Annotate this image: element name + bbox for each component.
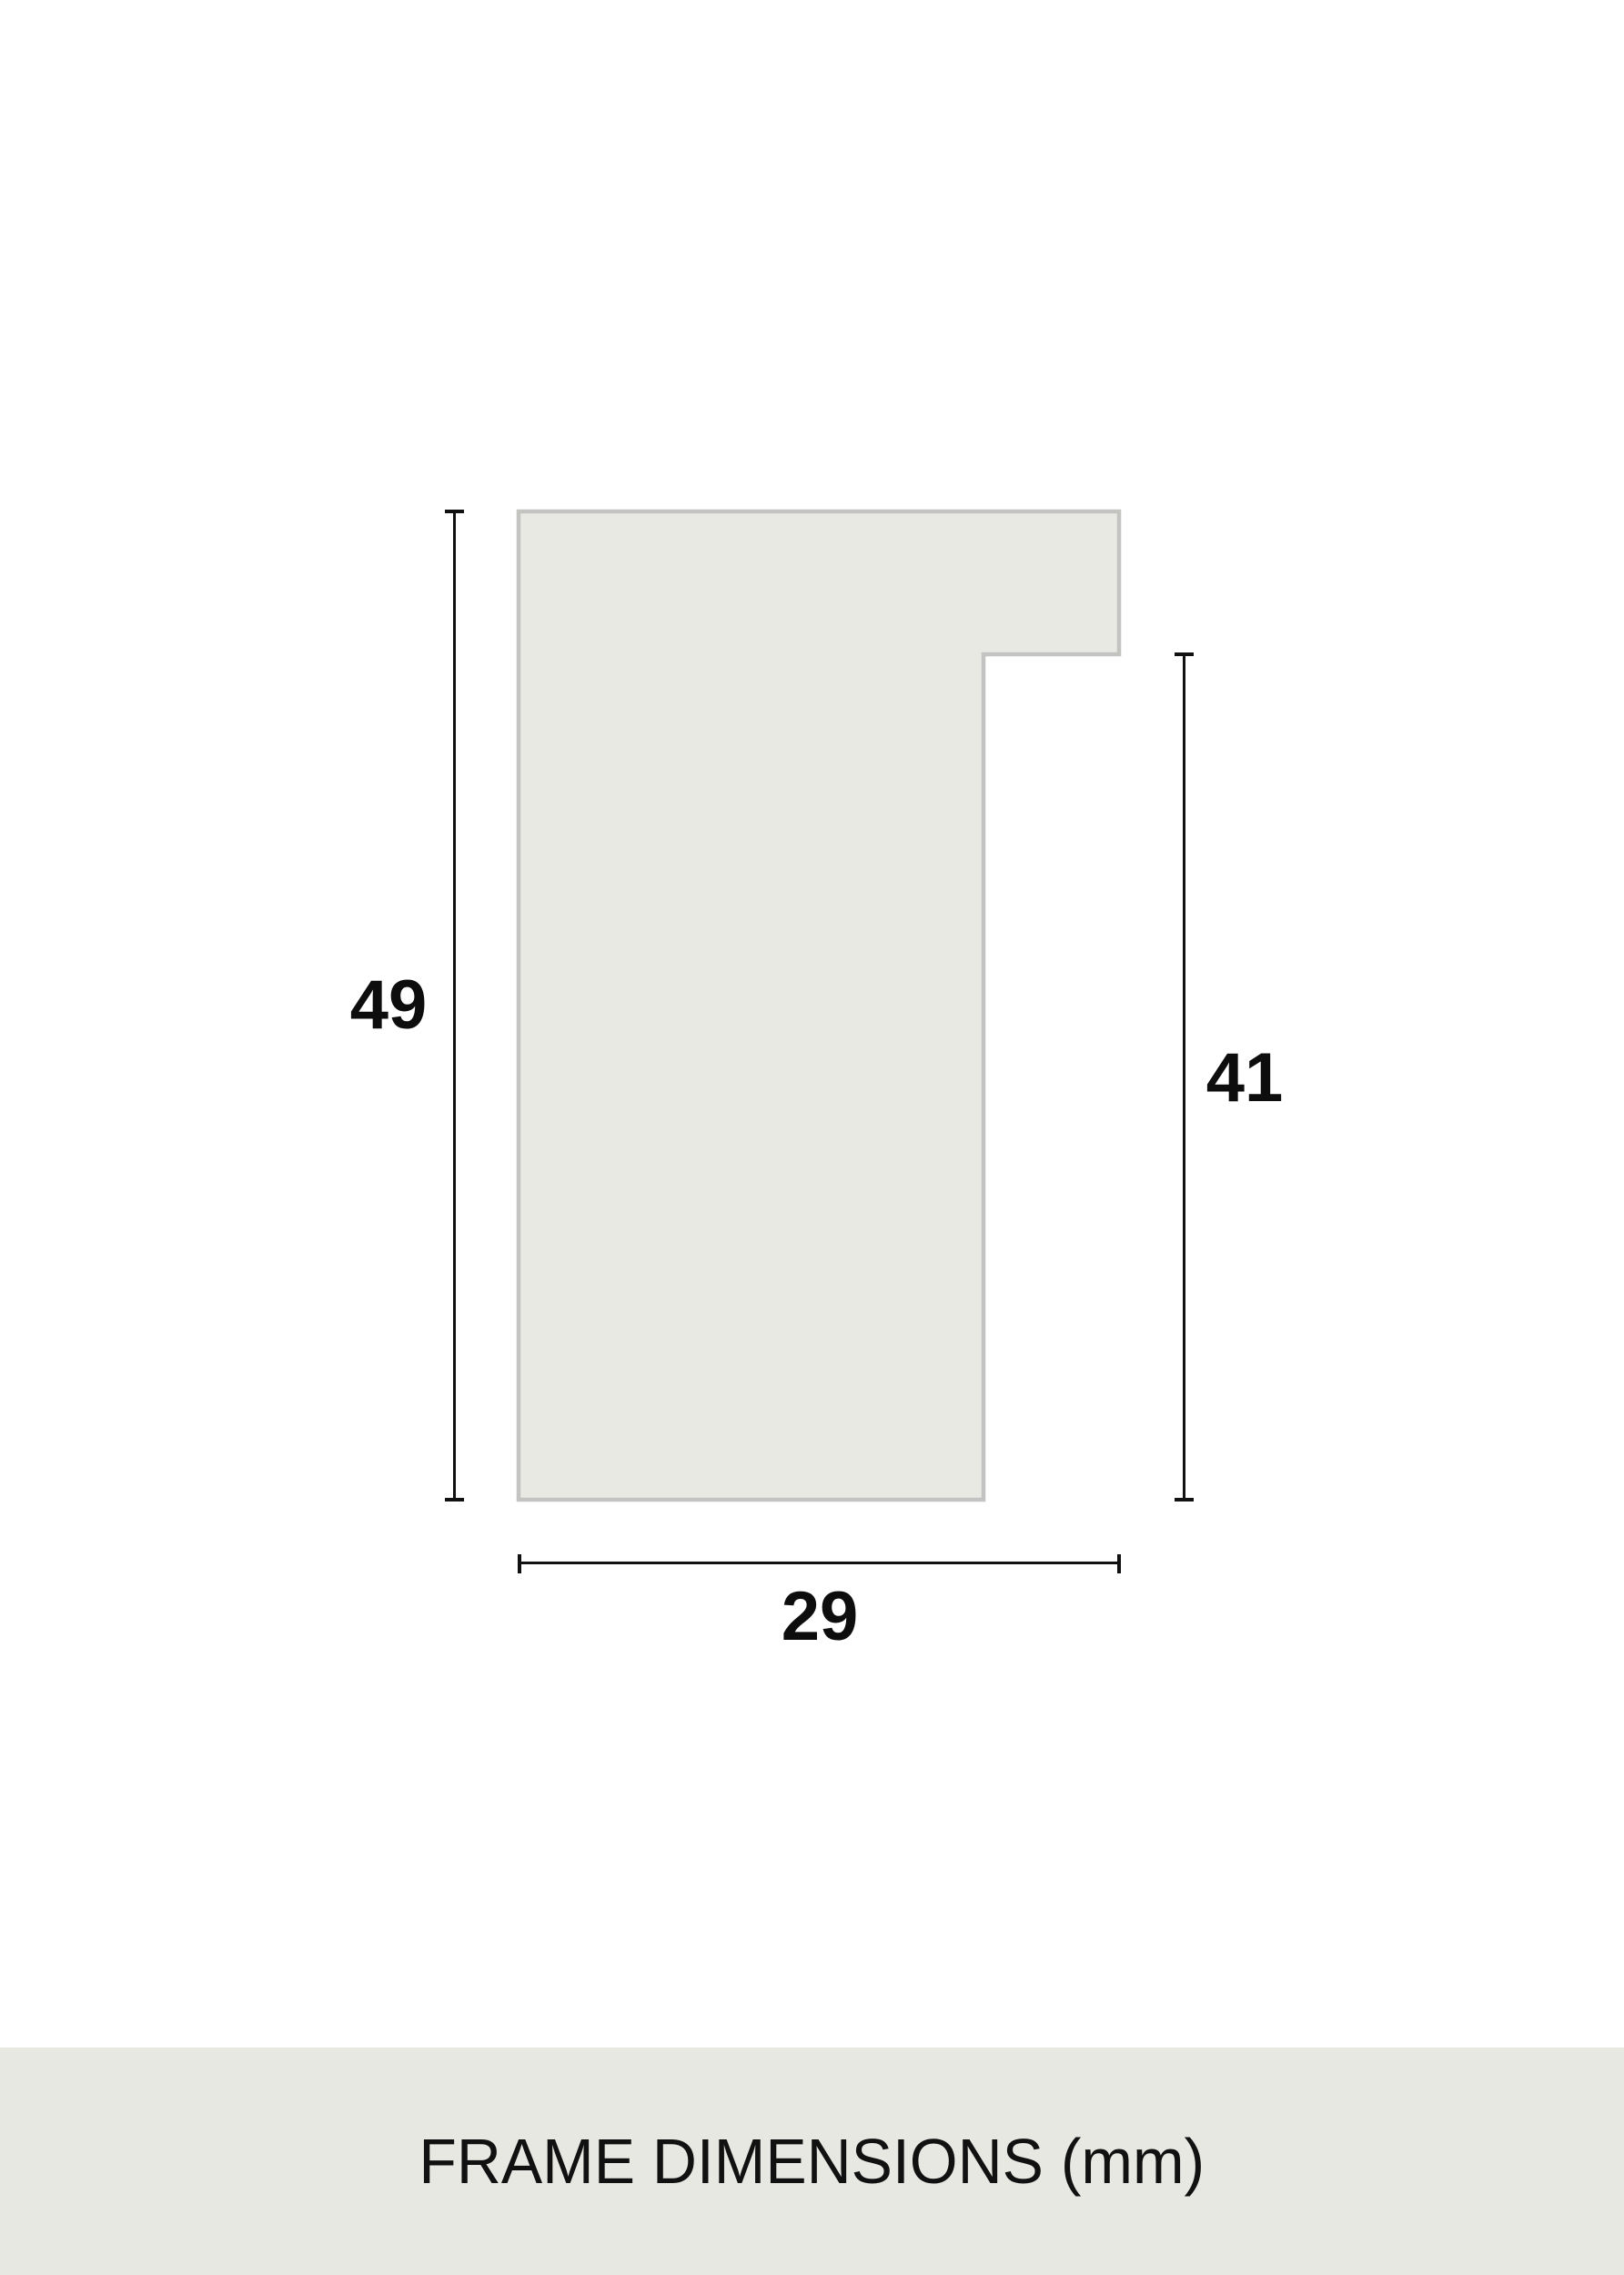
footer-caption: FRAME DIMENSIONS (mm) <box>419 2125 1205 2198</box>
outer-height-dim-value: 49 <box>350 971 428 1040</box>
footer-bar: FRAME DIMENSIONS (mm) <box>0 2047 1624 2275</box>
outer-height-dim-line <box>453 511 456 1500</box>
width-dim-line <box>519 1562 1119 1564</box>
frame-dimensions-diagram: 49 41 29 FRAME DIMENSIONS (mm) <box>0 0 1624 2275</box>
inner-height-dim-tick-bottom <box>1175 1498 1194 1501</box>
inner-height-dim-line <box>1183 654 1185 1500</box>
width-dim-tick-right <box>1117 1554 1121 1573</box>
inner-height-dim-value: 41 <box>1206 1044 1284 1113</box>
outer-height-dim-tick-bottom <box>445 1498 464 1501</box>
frame-profile-shape <box>0 0 1624 2275</box>
frame-profile-path <box>519 511 1119 1500</box>
width-dim-value: 29 <box>782 1582 859 1652</box>
